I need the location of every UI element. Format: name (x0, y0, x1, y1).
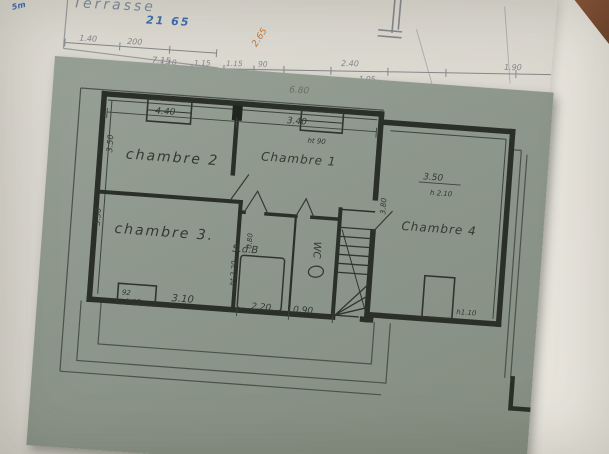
dim-ch1-window: ht 90 (307, 137, 326, 146)
dim-ch3-width: 3.10 (171, 293, 194, 306)
door-swings (229, 173, 394, 233)
room-label-chambre2: chambre 2 (125, 146, 219, 169)
dim-faint-width: 6.80 (289, 85, 310, 96)
dim-200: 200 (127, 37, 143, 47)
terrasse-label: Terrasse (73, 0, 156, 15)
dim-bath-width: 2.20 (251, 302, 272, 313)
dim-ch2-depth: 3.50 (105, 134, 115, 152)
dim-ch2-width: 4.40 (155, 107, 176, 118)
dim-ch4-note: h 2.10 (430, 189, 453, 199)
dim-ch3-window-h: h.18 (126, 297, 141, 306)
dim-bath-height: ht 2.20 (229, 260, 239, 286)
room-label-chambre1: Chambre 1 (261, 149, 337, 168)
dim-ch4-window: h1.10 (456, 308, 477, 317)
dim-right-wall: 3.80 (378, 197, 388, 215)
dim-240: 2.40 (341, 59, 359, 68)
dim-ch1-width: 3.40 (286, 116, 307, 127)
dim-115b: 1.15 (226, 59, 243, 68)
room-label-wc: WC (310, 241, 322, 258)
floor-plan-drawing: chambre 2 Chambre 1 chambre 3. Chambre 4… (26, 56, 553, 454)
dim-wc-width: 0.90 (293, 305, 314, 316)
toilet (308, 265, 324, 277)
photo-of-floor-plans: Terrasse 5m 5m 21 65 2.65 1.40 200 7.15 … (0, 0, 609, 454)
wood-table-corner (567, 0, 609, 44)
wall-sketch-top-right (378, 0, 558, 55)
window-ch4 (422, 276, 455, 319)
dim-90: 90 (258, 60, 268, 69)
orange-dim: 2.65 (250, 26, 269, 48)
dim-140: 1.40 (79, 34, 97, 44)
dim-bath-door: 0.80 (245, 232, 254, 249)
dim-190: 1.90 (504, 63, 522, 72)
corner-note: 5m (11, 0, 27, 12)
room-label-chambre3: chambre 3. (114, 221, 215, 244)
dim-ch3-depth: 3.50 (93, 207, 103, 225)
dim-ch4-width: 3.50 (423, 172, 444, 183)
plan-sheet: chambre 2 Chambre 1 chambre 3. Chambre 4… (26, 56, 553, 454)
total-width-note: 21 65 (146, 14, 191, 29)
room-label-chambre4: Chambre 4 (401, 219, 477, 238)
